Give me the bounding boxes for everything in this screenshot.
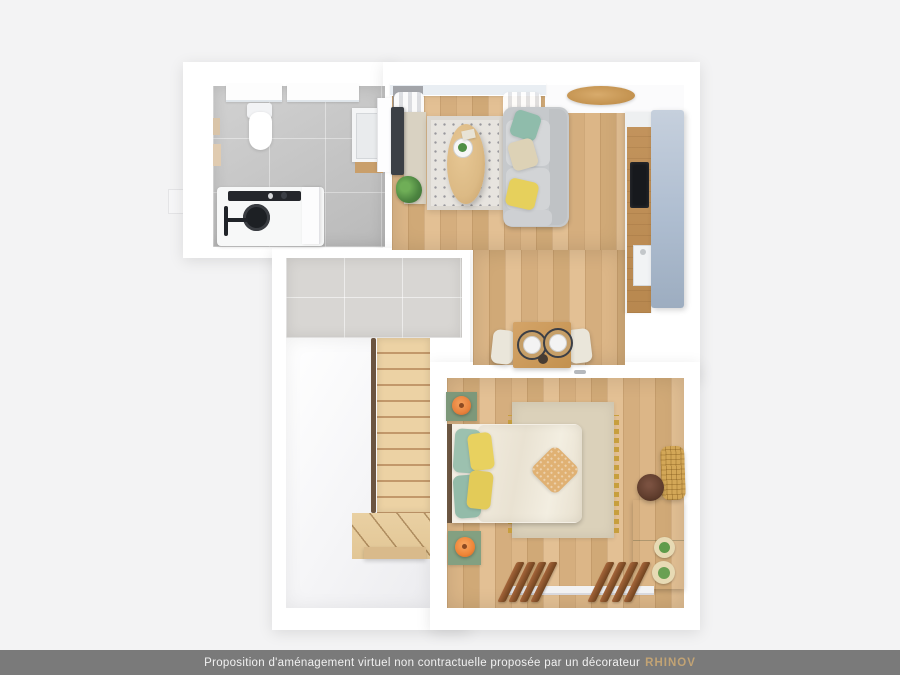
toilet-bowl [249, 112, 272, 150]
plate [523, 336, 541, 354]
sink-faucet [640, 249, 646, 255]
plate [549, 334, 567, 352]
sofa-chaise [504, 210, 552, 226]
cactus [658, 567, 670, 579]
wood-slat-rack [505, 561, 549, 603]
rattan-chair [660, 446, 686, 501]
tray-plant [458, 143, 467, 152]
bathroom-window [226, 84, 282, 102]
bedroom-door-handle [574, 370, 586, 374]
dining-chair-left [490, 329, 515, 365]
shower-mixer-arm [224, 218, 248, 222]
stair-handrail [371, 338, 376, 513]
sofa-backrest [549, 109, 567, 225]
round-entry-table [567, 86, 635, 105]
stair-landing [286, 258, 462, 338]
shower-shelf [228, 191, 301, 201]
lamp-center [459, 403, 464, 408]
induction-hob [630, 162, 649, 208]
serving-bowl [538, 354, 548, 364]
wood-slat-rack [595, 561, 645, 603]
shower-divider-door [302, 187, 320, 244]
bathroom-window [287, 84, 359, 102]
bathroom-door [377, 98, 391, 172]
wall-art [213, 144, 221, 166]
tv [391, 107, 404, 175]
disclaimer-bar: Proposition d'aménagement virtuel non co… [0, 650, 900, 675]
rug-fringe-right [614, 415, 619, 533]
kitchen-tall-cabinet [651, 110, 684, 308]
toiletry-bottle [268, 193, 273, 199]
bed-pillow-yellow [467, 432, 495, 472]
stair-bottom-step [364, 547, 426, 559]
floorplan-render: Proposition d'aménagement virtuel non co… [0, 0, 900, 675]
toiletry-bottle [281, 192, 287, 199]
bed-pillow-yellow [466, 470, 494, 510]
brand-rhinov: RHINOV [645, 657, 696, 669]
disclaimer-text: Proposition d'aménagement virtuel non co… [204, 657, 640, 669]
wall-art [213, 118, 220, 135]
lamp-center [462, 544, 467, 549]
cactus [659, 542, 670, 553]
staircase-flight [377, 338, 430, 513]
plant [396, 176, 422, 203]
brown-pouf [637, 474, 664, 501]
